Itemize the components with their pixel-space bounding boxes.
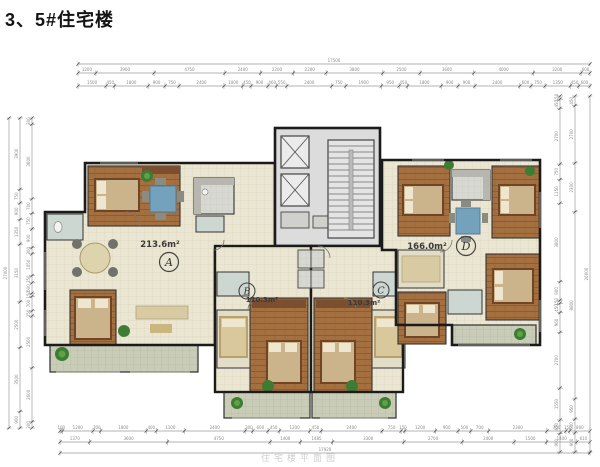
plant bbox=[346, 380, 358, 392]
svg-text:900: 900 bbox=[554, 287, 559, 295]
svg-text:1500: 1500 bbox=[87, 80, 98, 85]
svg-text:2700: 2700 bbox=[569, 129, 574, 140]
svg-text:2300: 2300 bbox=[513, 425, 524, 430]
pillow bbox=[78, 299, 91, 308]
svg-text:450: 450 bbox=[554, 304, 559, 312]
svg-text:250: 250 bbox=[26, 309, 31, 317]
svg-text:900: 900 bbox=[153, 80, 161, 85]
svg-text:2400: 2400 bbox=[210, 425, 221, 430]
svg-text:1800: 1800 bbox=[118, 425, 129, 430]
svg-text:700: 700 bbox=[26, 202, 31, 210]
svg-text:1500: 1500 bbox=[525, 436, 536, 441]
svg-text:3200: 3200 bbox=[552, 67, 563, 72]
svg-text:4750: 4750 bbox=[214, 436, 225, 441]
pillow bbox=[222, 319, 245, 327]
svg-text:2400: 2400 bbox=[196, 80, 207, 85]
stair-rail bbox=[349, 150, 353, 230]
svg-text:450: 450 bbox=[106, 80, 114, 85]
svg-text:2400: 2400 bbox=[347, 425, 358, 430]
pillow bbox=[269, 343, 281, 352]
svg-text:750: 750 bbox=[388, 425, 396, 430]
svg-text:300: 300 bbox=[245, 425, 253, 430]
svg-text:350: 350 bbox=[26, 275, 31, 283]
pillow bbox=[339, 343, 351, 352]
svg-text:300: 300 bbox=[26, 117, 31, 125]
pillow bbox=[501, 201, 509, 213]
svg-text:3300: 3300 bbox=[363, 436, 374, 441]
drawing-caption: 住宅楼平面图 bbox=[0, 451, 600, 464]
floorplan-page: 3、5#住宅楼 1750012003900475024002200220038 bbox=[0, 0, 600, 467]
kitchen-counter bbox=[483, 170, 490, 200]
svg-text:500: 500 bbox=[461, 425, 469, 430]
svg-text:1350: 1350 bbox=[14, 226, 19, 237]
plant bbox=[59, 351, 66, 358]
pillow bbox=[423, 305, 435, 313]
sofa bbox=[402, 256, 440, 282]
svg-text:2400: 2400 bbox=[492, 80, 503, 85]
svg-text:3600: 3600 bbox=[442, 67, 453, 72]
svg-text:1200: 1200 bbox=[415, 425, 426, 430]
svg-text:900: 900 bbox=[26, 234, 31, 242]
svg-text:1800: 1800 bbox=[126, 80, 137, 85]
svg-text:2700: 2700 bbox=[554, 131, 559, 142]
plant bbox=[444, 160, 454, 170]
svg-text:150: 150 bbox=[399, 425, 407, 430]
svg-text:2600: 2600 bbox=[26, 389, 31, 400]
pillow bbox=[405, 187, 413, 199]
svg-text:550: 550 bbox=[278, 80, 286, 85]
svg-text:1200: 1200 bbox=[82, 67, 93, 72]
dining-table bbox=[456, 208, 480, 234]
svg-text:960: 960 bbox=[554, 318, 559, 326]
svg-text:600: 600 bbox=[582, 67, 590, 72]
dimension-row: 3003600700750900300105035050015070025025… bbox=[26, 116, 35, 429]
svg-text:4000: 4000 bbox=[498, 67, 509, 72]
chair bbox=[461, 201, 471, 207]
coffee-table bbox=[150, 324, 172, 333]
svg-text:460: 460 bbox=[268, 80, 276, 85]
svg-text:300: 300 bbox=[26, 246, 31, 254]
svg-text:4750: 4750 bbox=[184, 67, 195, 72]
svg-text:1350: 1350 bbox=[553, 80, 564, 85]
dimension-row: 26000 bbox=[584, 94, 592, 453]
plant bbox=[144, 173, 150, 179]
svg-text:450: 450 bbox=[270, 425, 278, 430]
svg-text:100: 100 bbox=[57, 425, 65, 430]
svg-text:800: 800 bbox=[576, 425, 584, 430]
svg-text:600: 600 bbox=[257, 425, 265, 430]
sofa bbox=[136, 306, 188, 319]
svg-text:2400: 2400 bbox=[304, 80, 315, 85]
svg-text:650: 650 bbox=[554, 422, 559, 430]
svg-text:27000: 27000 bbox=[3, 266, 8, 279]
plant bbox=[234, 400, 240, 406]
svg-text:600: 600 bbox=[522, 80, 530, 85]
unit-a-bath bbox=[196, 216, 224, 232]
pillow bbox=[405, 201, 413, 213]
svg-text:3800: 3800 bbox=[554, 237, 559, 248]
svg-text:750: 750 bbox=[168, 80, 176, 85]
svg-text:950: 950 bbox=[569, 405, 574, 413]
svg-text:1000: 1000 bbox=[228, 80, 239, 85]
svg-text:1485: 1485 bbox=[311, 436, 322, 441]
unit-a-area-label: 213.6m² bbox=[140, 240, 180, 250]
unit-a-letter: A bbox=[164, 256, 173, 269]
svg-text:300: 300 bbox=[26, 421, 31, 429]
svg-text:3150: 3150 bbox=[14, 267, 19, 278]
svg-text:2300: 2300 bbox=[569, 182, 574, 193]
svg-text:450: 450 bbox=[312, 425, 320, 430]
dimension-row: 1500450180090075024001000450900460550240… bbox=[76, 80, 591, 89]
plant bbox=[525, 166, 535, 176]
svg-text:2700: 2700 bbox=[554, 355, 559, 366]
dimension-row: 1504502700750115038009001504509602700155… bbox=[554, 93, 563, 453]
unit-d-area-label: 166.0m² bbox=[407, 242, 447, 252]
plant bbox=[382, 400, 388, 406]
svg-text:1100: 1100 bbox=[165, 425, 176, 430]
svg-text:3600: 3600 bbox=[26, 156, 31, 167]
svg-text:600: 600 bbox=[581, 80, 589, 85]
unit-d-letter: D bbox=[461, 240, 471, 253]
svg-text:2500: 2500 bbox=[14, 319, 19, 330]
svg-text:450: 450 bbox=[569, 97, 574, 105]
svg-text:450: 450 bbox=[554, 99, 559, 107]
dimension-row: 27000 bbox=[3, 116, 11, 429]
svg-text:2500: 2500 bbox=[396, 67, 407, 72]
chair bbox=[142, 191, 149, 202]
svg-text:900: 900 bbox=[14, 207, 19, 215]
svg-text:650: 650 bbox=[569, 422, 574, 430]
pillow bbox=[501, 187, 509, 199]
svg-text:450: 450 bbox=[400, 80, 408, 85]
chair bbox=[449, 213, 455, 223]
plant bbox=[262, 380, 274, 392]
svg-text:900: 900 bbox=[14, 416, 19, 424]
svg-text:300: 300 bbox=[93, 425, 101, 430]
building bbox=[45, 128, 540, 418]
pillow bbox=[323, 343, 335, 352]
svg-text:3500: 3500 bbox=[14, 374, 19, 385]
toilet bbox=[54, 222, 62, 233]
svg-text:17500: 17500 bbox=[328, 58, 341, 63]
svg-text:750: 750 bbox=[14, 192, 19, 200]
svg-text:2400: 2400 bbox=[238, 67, 249, 72]
svg-text:700: 700 bbox=[476, 425, 484, 430]
svg-text:1150: 1150 bbox=[554, 186, 559, 197]
unit-d-bath bbox=[448, 290, 482, 314]
svg-text:610: 610 bbox=[580, 436, 588, 441]
svg-text:900: 900 bbox=[443, 425, 451, 430]
kitchen-counter bbox=[194, 178, 201, 214]
dimension-row: 1370360047501400148533002700240015001400… bbox=[58, 436, 591, 445]
pillow bbox=[97, 196, 106, 209]
svg-text:900: 900 bbox=[463, 80, 471, 85]
chair bbox=[72, 267, 82, 277]
svg-text:1370: 1370 bbox=[70, 436, 81, 441]
svg-text:1550: 1550 bbox=[554, 399, 559, 410]
svg-text:26000: 26000 bbox=[584, 267, 589, 280]
svg-text:3900: 3900 bbox=[14, 148, 19, 159]
unit-b-area-label: 110.3m² bbox=[246, 296, 279, 304]
unit-a-bath2 bbox=[47, 214, 83, 240]
chair bbox=[72, 239, 82, 249]
svg-text:900: 900 bbox=[256, 80, 264, 85]
dining-table bbox=[150, 186, 176, 212]
svg-text:450: 450 bbox=[243, 80, 251, 85]
round-table bbox=[80, 243, 110, 273]
svg-text:900: 900 bbox=[554, 438, 559, 446]
svg-text:3800: 3800 bbox=[349, 67, 360, 72]
svg-text:400: 400 bbox=[147, 425, 155, 430]
floorplan-drawing: 1750012003900475024002200220038002500360… bbox=[0, 0, 600, 467]
stair-core bbox=[275, 128, 380, 246]
svg-text:1200: 1200 bbox=[73, 425, 84, 430]
svg-text:750: 750 bbox=[335, 80, 343, 85]
kitchen-sink bbox=[202, 189, 208, 195]
plant bbox=[118, 325, 130, 337]
svg-text:150: 150 bbox=[26, 291, 31, 299]
svg-text:3600: 3600 bbox=[123, 436, 134, 441]
dimension-row: 39007509001350315025003500900 bbox=[14, 116, 23, 429]
plant bbox=[517, 331, 523, 337]
svg-text:2200: 2200 bbox=[305, 67, 316, 72]
svg-text:450: 450 bbox=[571, 80, 579, 85]
svg-text:1200: 1200 bbox=[289, 425, 300, 430]
svg-text:2700: 2700 bbox=[428, 436, 439, 441]
svg-text:8800: 8800 bbox=[569, 300, 574, 311]
service-room bbox=[281, 212, 309, 228]
svg-text:1050: 1050 bbox=[26, 259, 31, 270]
chair bbox=[108, 239, 118, 249]
pillow bbox=[95, 299, 108, 308]
unit-c-area-label: 110.3m² bbox=[348, 299, 381, 307]
svg-text:1400: 1400 bbox=[280, 436, 291, 441]
svg-text:950: 950 bbox=[386, 80, 394, 85]
svg-text:1900: 1900 bbox=[358, 80, 369, 85]
dimension-row: 1200390047502400220022003800250036004000… bbox=[76, 67, 591, 76]
dimension-row: 1001200300180040011002400300600450120045… bbox=[57, 425, 591, 434]
chair bbox=[108, 267, 118, 277]
svg-text:2400: 2400 bbox=[483, 436, 494, 441]
chair bbox=[177, 191, 184, 202]
chair bbox=[155, 213, 166, 220]
unit-c-letter: C bbox=[377, 286, 385, 297]
dimension-row: 17500 bbox=[76, 58, 591, 66]
svg-text:500: 500 bbox=[26, 284, 31, 292]
dimension-row: 450270023008800950650900 bbox=[569, 94, 578, 453]
unit-a-balcony bbox=[50, 345, 198, 372]
svg-text:1800: 1800 bbox=[419, 80, 430, 85]
svg-text:900: 900 bbox=[446, 80, 454, 85]
svg-text:3900: 3900 bbox=[120, 67, 131, 72]
svg-text:700: 700 bbox=[26, 299, 31, 307]
pillow bbox=[495, 287, 503, 300]
svg-text:900: 900 bbox=[569, 438, 574, 446]
svg-text:750: 750 bbox=[554, 168, 559, 176]
svg-text:2500: 2500 bbox=[26, 336, 31, 347]
chair bbox=[155, 178, 166, 185]
pillow bbox=[407, 305, 419, 313]
svg-text:2200: 2200 bbox=[272, 67, 283, 72]
svg-text:750: 750 bbox=[26, 217, 31, 225]
unit-c bbox=[311, 246, 405, 418]
unit-b bbox=[215, 246, 311, 418]
pillow bbox=[97, 181, 106, 194]
chair bbox=[482, 213, 488, 223]
pillow bbox=[495, 271, 503, 284]
pillow bbox=[285, 343, 297, 352]
svg-text:750: 750 bbox=[534, 80, 542, 85]
